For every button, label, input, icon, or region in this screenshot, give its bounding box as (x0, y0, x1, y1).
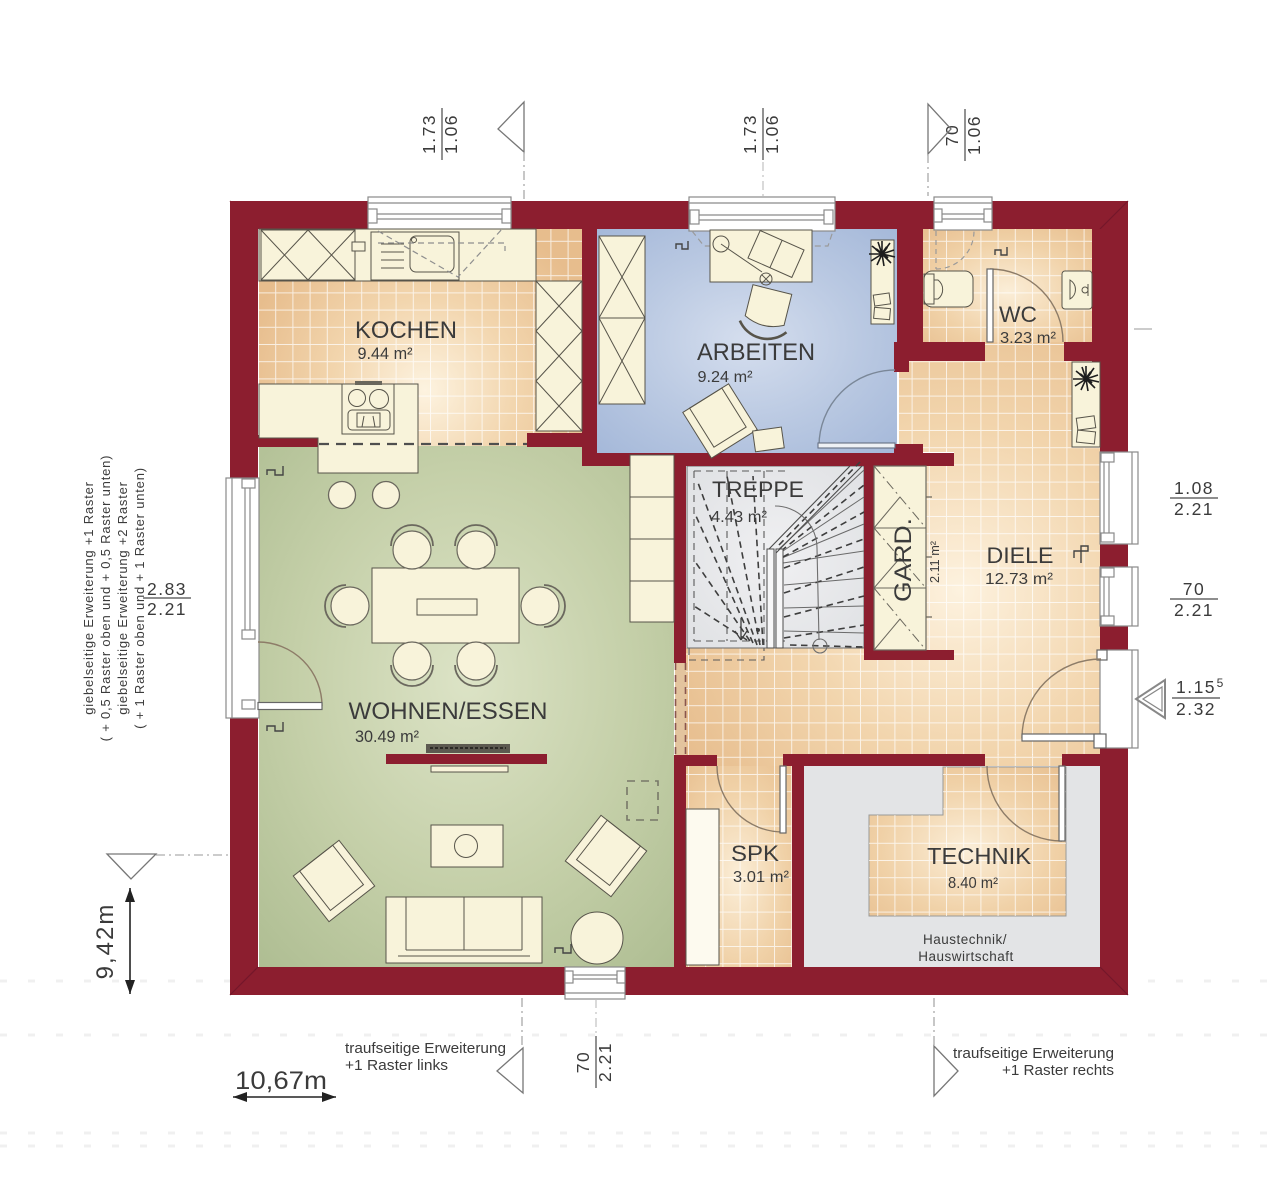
svg-text:9,42m: 9,42m (92, 903, 119, 980)
svg-text:KOCHEN: KOCHEN (355, 317, 457, 344)
svg-text:2.21: 2.21 (1174, 499, 1214, 519)
svg-text:30.49 m²: 30.49 m² (355, 728, 419, 746)
svg-text:DIELE: DIELE (987, 543, 1054, 568)
svg-text:2.21: 2.21 (147, 599, 187, 619)
svg-text:traufseitige Erweiterung: traufseitige Erweiterung (953, 1046, 1114, 1062)
svg-text:3.23 m²: 3.23 m² (1000, 330, 1057, 347)
svg-text:+1 Raster rechts: +1 Raster rechts (1002, 1063, 1114, 1079)
svg-text:traufseitige Erweiterung: traufseitige Erweiterung (345, 1041, 506, 1057)
svg-text:SPK: SPK (731, 841, 779, 866)
svg-text:1.73: 1.73 (419, 114, 439, 154)
svg-text:2.32: 2.32 (1176, 699, 1216, 719)
svg-text:3.01 m²: 3.01 m² (733, 869, 790, 886)
svg-text:giebelseitige Erweiterung +1 R: giebelseitige Erweiterung +1 Raster (81, 481, 96, 715)
svg-text:1.06: 1.06 (964, 115, 984, 155)
svg-text:1.08: 1.08 (1174, 478, 1214, 498)
svg-text:9.44 m²: 9.44 m² (358, 345, 413, 363)
svg-text:4.43 m²: 4.43 m² (711, 509, 768, 526)
svg-text:WOHNEN/ESSEN: WOHNEN/ESSEN (349, 698, 548, 725)
svg-text:2.21: 2.21 (595, 1042, 615, 1082)
svg-text:Hauswirtschaft: Hauswirtschaft (918, 949, 1014, 964)
svg-text:TECHNIK: TECHNIK (927, 843, 1032, 869)
svg-text:ARBEITEN: ARBEITEN (697, 339, 815, 366)
svg-text:1.06: 1.06 (762, 114, 782, 154)
svg-text:9.24 m²: 9.24 m² (698, 369, 754, 386)
svg-text:GARD.: GARD. (890, 518, 917, 602)
svg-text:12.73 m²: 12.73 m² (985, 571, 1054, 588)
svg-text:8.40 m²: 8.40 m² (948, 875, 998, 892)
svg-text:WC: WC (999, 302, 1037, 327)
svg-text:Haustechnik/: Haustechnik/ (923, 932, 1007, 947)
svg-text:2.83: 2.83 (147, 579, 187, 599)
svg-text:+1 Raster links: +1 Raster links (345, 1058, 448, 1074)
svg-text:1.06: 1.06 (441, 114, 461, 154)
svg-text:70: 70 (1183, 579, 1205, 599)
svg-text:giebelseitige Erweiterung +2 R: giebelseitige Erweiterung +2 Raster (115, 481, 130, 715)
svg-text:( + 0,5 Raster oben und + 0,5: ( + 0,5 Raster oben und + 0,5 Raster unt… (98, 455, 113, 742)
svg-text:1.15: 1.15 (1176, 677, 1216, 697)
svg-text:2.21: 2.21 (1174, 600, 1214, 620)
svg-text:TREPPE: TREPPE (712, 477, 804, 502)
svg-text:70: 70 (573, 1051, 593, 1073)
svg-text:10,67m: 10,67m (235, 1067, 327, 1095)
svg-text:1.73: 1.73 (740, 114, 760, 154)
svg-text:2.11 m²: 2.11 m² (927, 540, 942, 583)
svg-text:( + 1 Raster oben und + 1 Rast: ( + 1 Raster oben und + 1 Raster unten) (132, 467, 147, 729)
svg-text:5: 5 (1217, 676, 1224, 690)
